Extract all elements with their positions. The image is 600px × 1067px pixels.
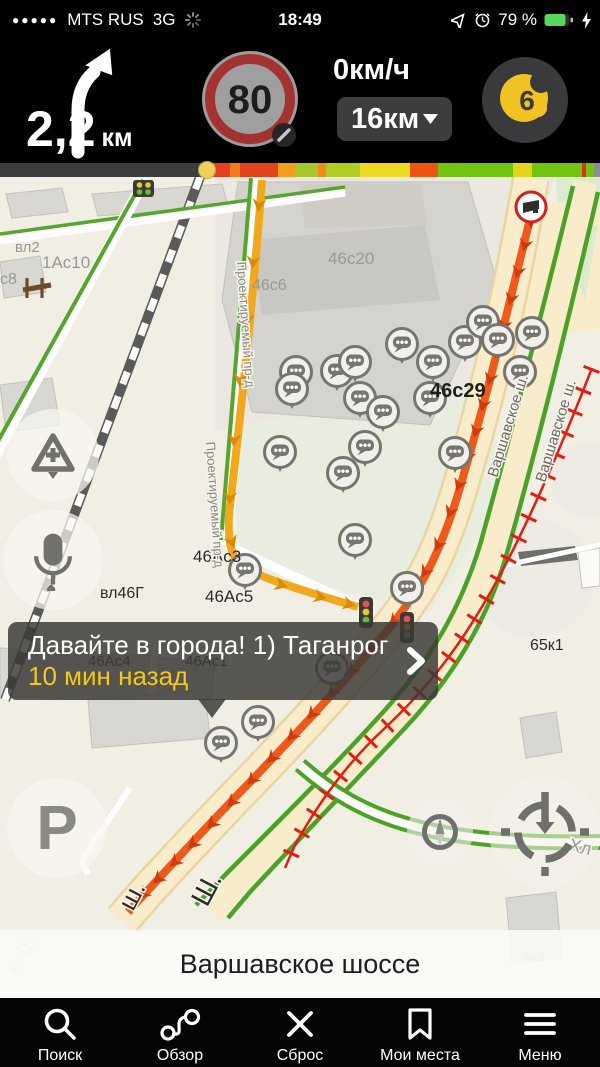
- map-view[interactable]: вл2 1Ас10 с8 46с6 46с20 46с29 46Ас3 46Ас…: [0, 177, 600, 998]
- add-road-event-button[interactable]: [7, 409, 99, 501]
- locate-me-button[interactable]: [489, 776, 600, 888]
- status-bar: ●●●●● MTS RUS 3G 18:49: [0, 0, 600, 40]
- traffic-light-icon: [133, 180, 154, 197]
- toolbar-label: Обзор: [157, 1047, 203, 1065]
- route-traffic-progress-bar: [0, 163, 600, 177]
- add-road-event-icon: [22, 424, 84, 486]
- traffic-progress-segment: [278, 163, 295, 177]
- parking-icon: P: [36, 793, 77, 864]
- map-label: вл2: [15, 239, 40, 256]
- yandex-navigator-app: ●●●●● MTS RUS 3G 18:49: [0, 0, 600, 1067]
- battery-percent-label: 79 %: [498, 10, 537, 30]
- microphone-icon: [23, 528, 83, 592]
- route-distance-dropdown[interactable]: 16км: [337, 97, 452, 141]
- maneuver-distance-unit: км: [102, 124, 133, 152]
- traffic-progress-segment: [318, 163, 326, 177]
- charging-bolt-icon: [581, 12, 592, 29]
- map-label: 46с29: [430, 380, 486, 402]
- battery-icon: [544, 13, 574, 27]
- toolbar-label: Поиск: [38, 1047, 82, 1065]
- current-street-name: Варшавское шоссе: [180, 949, 421, 980]
- chat-message-text: Давайте в города! 1) Таганрог: [28, 630, 394, 661]
- map-label: 65к1: [530, 637, 564, 654]
- map-label: с8: [0, 271, 17, 288]
- traffic-progress-segment: [326, 163, 360, 177]
- chat-message-time: 10 мин назад: [28, 661, 394, 692]
- locate-me-icon: [497, 784, 593, 880]
- map-label: вл46Г: [100, 585, 144, 602]
- route-distance-value: 16км: [351, 103, 419, 136]
- traffic-progress-segment: [532, 163, 582, 177]
- traffic-progress-segment: [594, 163, 600, 177]
- svg-text:80: 80: [228, 78, 273, 122]
- route-overview-icon: [158, 1002, 202, 1046]
- compass-icon: [418, 810, 462, 854]
- current-street-banner: Варшавское шоссе: [0, 930, 600, 998]
- bookmark-icon: [398, 1002, 442, 1046]
- traffic-progress-segment: [513, 163, 532, 177]
- map-label: 46Ас5: [205, 587, 253, 606]
- current-speed-label: 0км/ч: [333, 54, 410, 87]
- traffic-level-button[interactable]: 6: [480, 55, 570, 145]
- toolbar-my-places-button[interactable]: Мои места: [360, 998, 480, 1067]
- traffic-score-label: 6: [519, 85, 535, 116]
- traffic-progress-segment: [410, 163, 438, 177]
- voice-input-button[interactable]: [3, 510, 103, 610]
- speed-limit-sign[interactable]: 80: [194, 43, 306, 155]
- toolbar-label: Меню: [518, 1047, 561, 1065]
- map-label: 1Ас10: [42, 253, 90, 272]
- toolbar-reset-button[interactable]: Сброс: [240, 998, 360, 1067]
- menu-icon: [518, 1002, 562, 1046]
- map-label: 46с6: [252, 277, 287, 294]
- toolbar-overview-button[interactable]: Обзор: [120, 998, 240, 1067]
- current-position-marker: [198, 161, 216, 179]
- traffic-progress-segment: [360, 163, 410, 177]
- toolbar-label: Мои места: [380, 1047, 460, 1065]
- search-icon: [38, 1002, 82, 1046]
- traffic-progress-segment: [295, 163, 318, 177]
- parking-button[interactable]: P: [7, 778, 107, 878]
- traffic-progress-segment: [230, 163, 240, 177]
- popup-tail: [198, 699, 226, 718]
- traffic-progress-segment: [0, 163, 203, 177]
- alarm-clock-icon: [474, 12, 491, 29]
- traffic-progress-segment: [240, 163, 278, 177]
- compass-button[interactable]: [407, 799, 473, 865]
- close-icon: [278, 1002, 322, 1046]
- bottom-toolbar: Поиск Обзор Сброс Мои места: [0, 998, 600, 1067]
- traffic-progress-segment: [586, 163, 594, 177]
- toolbar-menu-button[interactable]: Меню: [480, 998, 600, 1067]
- chevron-down-icon: [423, 114, 438, 124]
- maneuver-distance: 2,2км: [26, 100, 133, 158]
- navigation-panel: 2,2км 80 0км/ч 16км 6: [0, 40, 600, 163]
- toolbar-label: Сброс: [277, 1047, 324, 1065]
- maneuver-distance-value: 2,2: [26, 101, 96, 157]
- toolbar-search-button[interactable]: Поиск: [0, 998, 120, 1067]
- chevron-right-icon: [406, 646, 426, 676]
- location-arrow-icon: [451, 12, 467, 28]
- chat-message-popup[interactable]: Давайте в города! 1) Таганрог 10 мин наз…: [8, 622, 438, 700]
- map-label: 46с20: [328, 249, 374, 268]
- traffic-progress-segment: [438, 163, 513, 177]
